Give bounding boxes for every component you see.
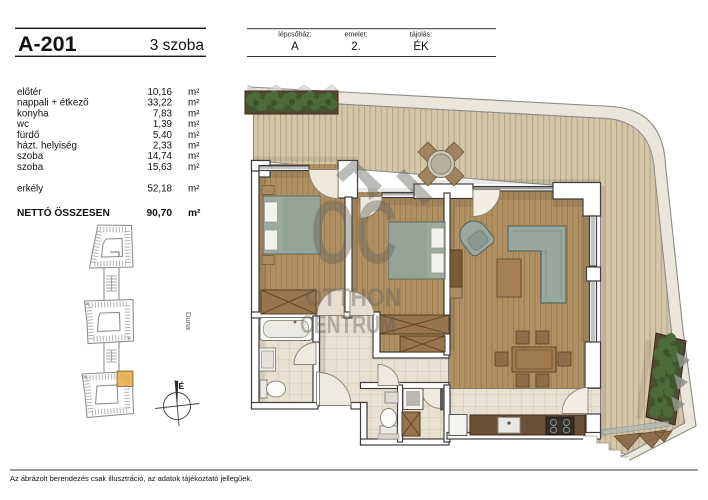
svg-text:Duna: Duna <box>184 312 193 331</box>
svg-text:3 szoba: 3 szoba <box>150 37 205 54</box>
svg-text:NETTÓ ÖSSZESEN: NETTÓ ÖSSZESEN <box>17 206 110 219</box>
svg-text:m²: m² <box>188 119 200 130</box>
svg-text:m²: m² <box>188 141 200 152</box>
svg-text:konyha: konyha <box>17 108 49 119</box>
svg-text:előtér: előtér <box>17 87 42 98</box>
svg-text:A-201: A-201 <box>18 32 77 56</box>
svg-text:OTTHON: OTTHON <box>305 284 401 312</box>
svg-text:m²: m² <box>188 98 200 109</box>
svg-text:Az ábrázolt berendezés csak il: Az ábrázolt berendezés csak illusztráció… <box>10 474 252 483</box>
svg-text:14,74: 14,74 <box>147 151 172 162</box>
svg-text:nappali + étkező: nappali + étkező <box>17 98 89 109</box>
svg-text:A: A <box>291 41 299 53</box>
svg-text:m²: m² <box>188 162 200 173</box>
svg-text:szoba: szoba <box>17 151 44 162</box>
svg-text:szoba: szoba <box>17 162 44 173</box>
svg-text:lépcsőház:: lépcsőház: <box>278 32 312 39</box>
svg-text:m²: m² <box>188 87 200 98</box>
svg-text:15,63: 15,63 <box>147 162 172 173</box>
svg-text:wc: wc <box>16 119 29 130</box>
svg-text:emelet:: emelet: <box>345 32 368 39</box>
svg-text:m²: m² <box>188 151 200 162</box>
svg-text:m²: m² <box>188 184 200 195</box>
svg-text:33,22: 33,22 <box>147 98 172 109</box>
svg-text:5,40: 5,40 <box>153 130 173 141</box>
svg-text:7,83: 7,83 <box>153 108 173 119</box>
svg-text:É: É <box>179 381 185 391</box>
svg-text:2,33: 2,33 <box>153 141 173 152</box>
svg-text:52,18: 52,18 <box>147 184 172 195</box>
svg-text:ÉK: ÉK <box>413 40 429 53</box>
svg-text:m²: m² <box>188 108 200 119</box>
svg-text:m²: m² <box>188 208 201 219</box>
svg-text:CENTRUM: CENTRUM <box>300 311 396 339</box>
svg-text:OC: OC <box>311 183 397 283</box>
svg-text:2.: 2. <box>351 41 361 53</box>
svg-text:házt. helyiség: házt. helyiség <box>17 141 77 152</box>
svg-text:erkély: erkély <box>17 184 43 195</box>
svg-text:m²: m² <box>188 130 200 141</box>
svg-text:90,70: 90,70 <box>147 208 173 219</box>
svg-text:10,16: 10,16 <box>147 87 172 98</box>
svg-text:1,39: 1,39 <box>153 119 172 130</box>
svg-text:tájolás:: tájolás: <box>410 32 432 39</box>
svg-text:fürdő: fürdő <box>17 130 40 141</box>
